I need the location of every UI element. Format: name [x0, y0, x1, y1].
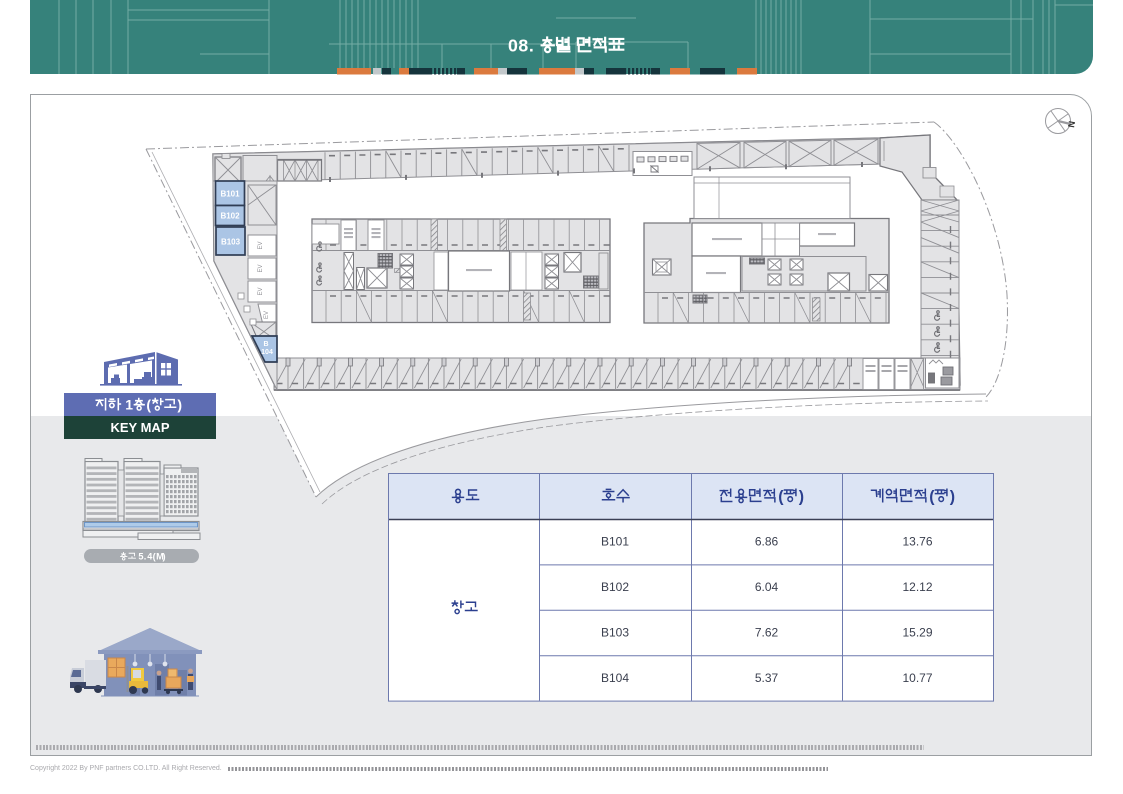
svg-text:B102: B102 — [220, 212, 240, 221]
svg-text:104: 104 — [261, 349, 273, 356]
svg-text:B102: B102 — [601, 580, 629, 594]
svg-text:6.04: 6.04 — [755, 580, 779, 594]
svg-text:B103: B103 — [601, 626, 629, 640]
svg-text:15.29: 15.29 — [902, 626, 932, 640]
svg-text:6.86: 6.86 — [755, 535, 779, 549]
svg-text:B: B — [263, 341, 268, 348]
svg-text:): ) — [177, 396, 182, 412]
svg-text:(: ( — [146, 396, 151, 412]
svg-text:EV: EV — [258, 241, 264, 249]
svg-text:5: 5 — [138, 552, 143, 562]
svg-text:1: 1 — [125, 396, 133, 412]
svg-text:(: ( — [929, 488, 935, 505]
svg-text:): ) — [950, 488, 955, 505]
svg-text:(: ( — [778, 488, 784, 505]
svg-text:7.62: 7.62 — [755, 626, 779, 640]
svg-text:): ) — [163, 552, 166, 562]
svg-text:12.12: 12.12 — [902, 580, 932, 594]
svg-text:B101: B101 — [220, 190, 240, 199]
svg-text:B104: B104 — [601, 671, 629, 685]
svg-text:5.37: 5.37 — [755, 671, 779, 685]
svg-text:10.77: 10.77 — [902, 671, 932, 685]
svg-text:B103: B103 — [221, 238, 241, 247]
svg-text:.: . — [144, 552, 147, 562]
svg-text:EV: EV — [258, 287, 264, 295]
svg-text:): ) — [799, 488, 804, 505]
svg-text:EV: EV — [264, 311, 270, 319]
svg-text:13.76: 13.76 — [902, 535, 932, 549]
svg-text:EV: EV — [258, 264, 264, 272]
svg-text:B101: B101 — [601, 535, 629, 549]
